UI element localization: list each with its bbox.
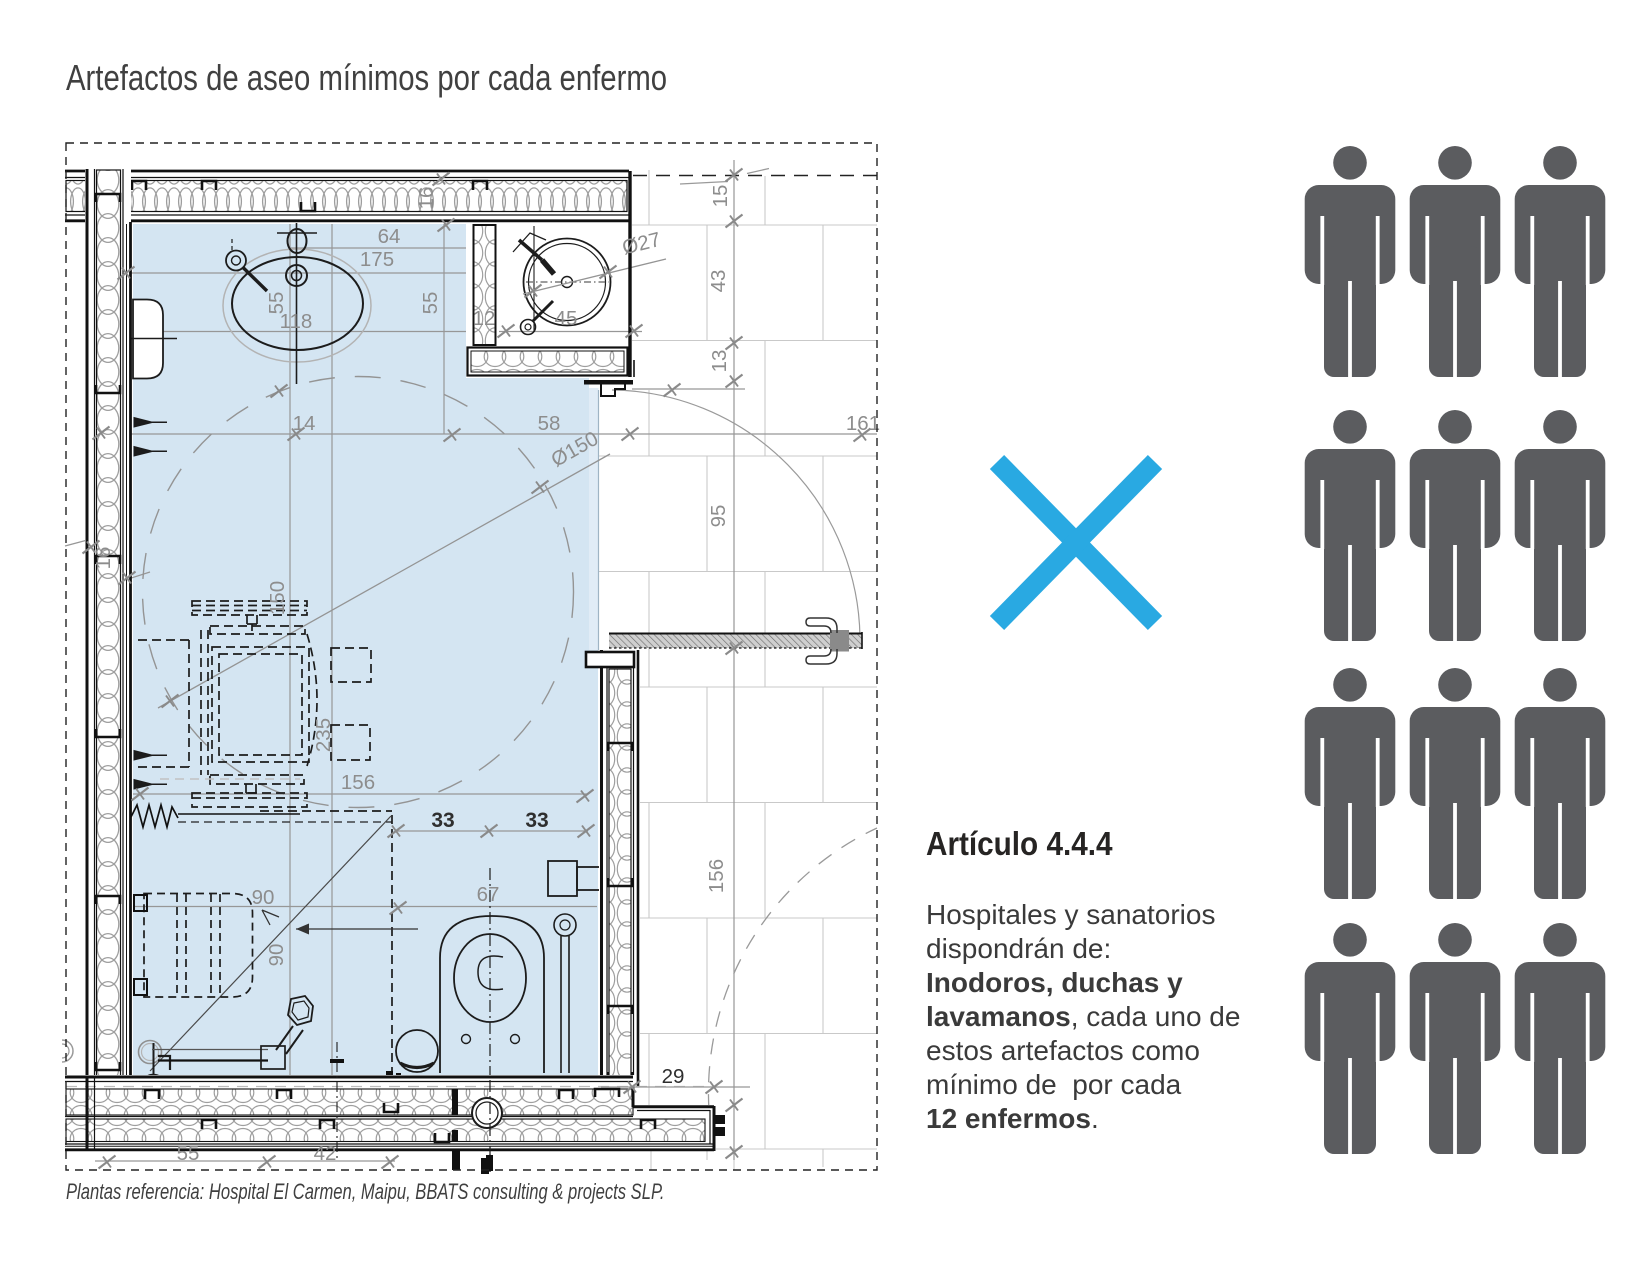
svg-text:55: 55 (177, 1142, 200, 1165)
svg-text:43: 43 (707, 270, 730, 293)
svg-text:235: 235 (312, 718, 335, 752)
svg-text:15: 15 (709, 185, 732, 208)
svg-text:156: 156 (705, 859, 728, 893)
svg-text:64: 64 (378, 225, 401, 248)
svg-text:156: 156 (341, 771, 375, 794)
svg-text:90: 90 (252, 886, 275, 909)
svg-text:29: 29 (662, 1065, 685, 1088)
svg-text:16: 16 (92, 547, 115, 570)
svg-text:33: 33 (525, 809, 548, 832)
svg-text:175: 175 (360, 248, 394, 271)
svg-text:161: 161 (846, 412, 880, 435)
svg-text:45: 45 (555, 307, 578, 330)
svg-text:55: 55 (419, 292, 442, 315)
svg-text:90: 90 (265, 944, 288, 967)
svg-text:55: 55 (265, 292, 288, 315)
svg-text:12: 12 (473, 307, 496, 330)
svg-text:95: 95 (707, 505, 730, 528)
svg-text:14: 14 (293, 412, 316, 435)
svg-text:58: 58 (538, 412, 561, 435)
svg-text:16: 16 (415, 187, 438, 210)
svg-text:13: 13 (708, 350, 731, 373)
svg-text:Ø27: Ø27 (620, 228, 663, 260)
svg-text:150: 150 (266, 581, 289, 615)
svg-text:33: 33 (431, 809, 454, 832)
svg-text:67: 67 (477, 883, 500, 906)
svg-text:42: 42 (314, 1142, 337, 1165)
